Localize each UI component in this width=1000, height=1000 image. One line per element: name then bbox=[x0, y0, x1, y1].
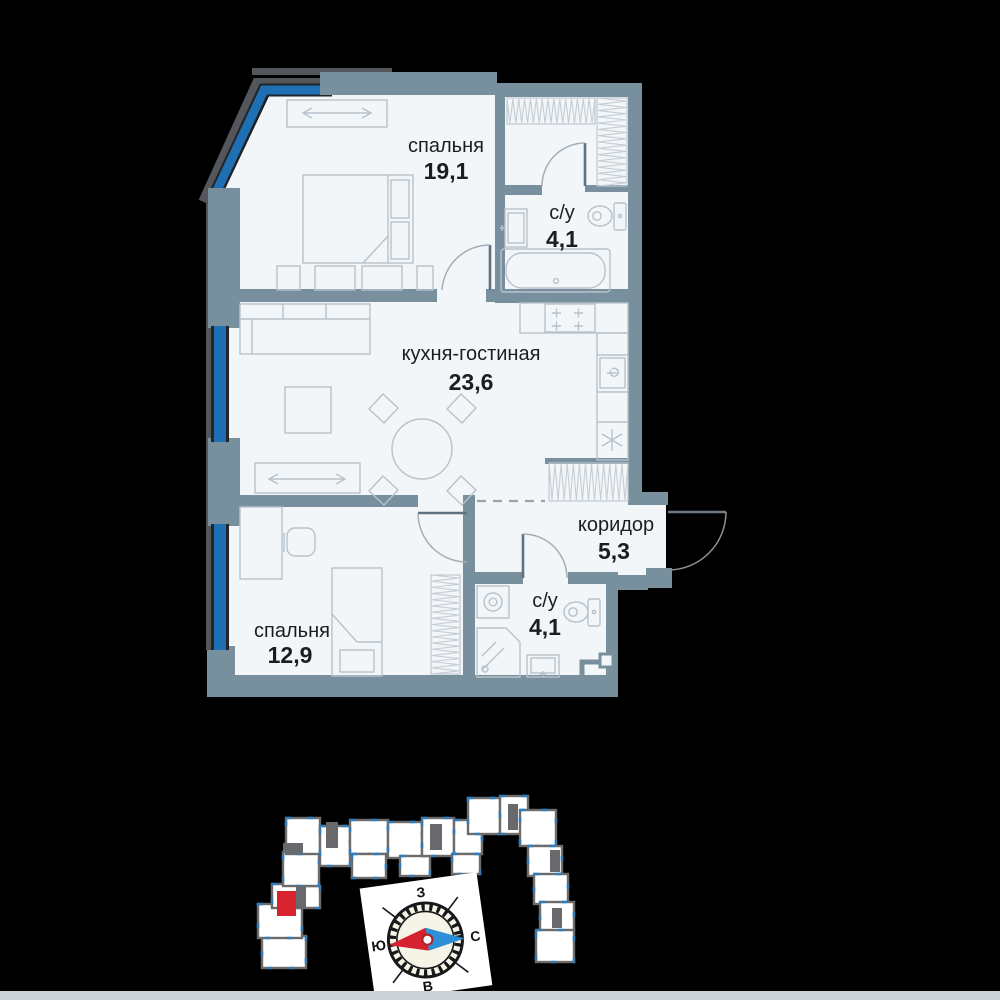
room-label-corridor: коридор bbox=[578, 514, 654, 536]
building-core bbox=[508, 804, 518, 830]
needle-pivot bbox=[422, 934, 433, 945]
room-label-bedroom-2: спальня bbox=[254, 620, 330, 642]
compass-label-left: Ю bbox=[370, 937, 387, 955]
building-unit bbox=[468, 798, 500, 834]
room-area-bathroom-1: 4,1 bbox=[546, 226, 578, 252]
building-unit bbox=[536, 930, 574, 962]
building-core bbox=[283, 843, 303, 853]
floor-plan-canvas: спальня 19,1 с/у 4,1 кухня-гостиная 23,6… bbox=[0, 0, 1000, 1000]
building-core bbox=[326, 822, 338, 848]
room-area-bedroom-1: 19,1 bbox=[424, 158, 469, 184]
room-label-kitchen: кухня-гостиная bbox=[402, 343, 541, 365]
compass-rose: З Ю С В bbox=[360, 872, 493, 1000]
room-label-bathroom-1: с/у bbox=[549, 202, 575, 224]
bottom-strip bbox=[0, 991, 1000, 1000]
highlight-unit-marker bbox=[277, 891, 296, 916]
room-area-bathroom-2: 4,1 bbox=[529, 614, 561, 640]
room-area-corridor: 5,3 bbox=[598, 538, 630, 564]
pipe-shaft-box bbox=[600, 654, 613, 667]
room-area-bedroom-2: 12,9 bbox=[268, 642, 313, 668]
building-core bbox=[552, 908, 562, 928]
screenshot-root: { "floor_plan": { "rooms": [ {"name": "с… bbox=[0, 0, 1000, 1000]
door-entrance bbox=[668, 512, 726, 570]
building-unit bbox=[534, 874, 568, 904]
building-unit bbox=[520, 810, 556, 846]
room-area-kitchen: 23,6 bbox=[449, 369, 494, 395]
building-unit bbox=[283, 852, 319, 886]
apartment-plan: спальня 19,1 с/у 4,1 кухня-гостиная 23,6… bbox=[206, 68, 726, 697]
building-unit bbox=[452, 854, 480, 874]
room-label-bedroom-1: спальня bbox=[408, 135, 484, 157]
building-core bbox=[430, 824, 442, 850]
building-unit bbox=[388, 822, 422, 858]
building-core bbox=[550, 850, 560, 872]
building-core bbox=[296, 886, 306, 908]
building-unit bbox=[262, 936, 306, 968]
building-unit bbox=[400, 856, 430, 876]
building-unit bbox=[352, 854, 386, 878]
building-unit bbox=[350, 820, 388, 854]
room-label-bathroom-2: с/у bbox=[532, 590, 558, 612]
